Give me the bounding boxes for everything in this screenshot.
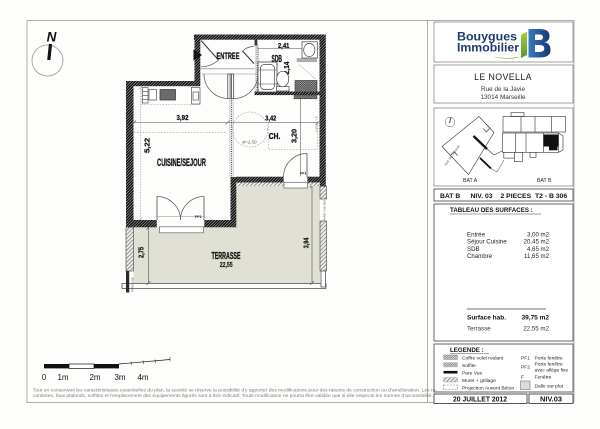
svg-text:LE NOVELLA: LE NOVELLA <box>474 72 532 82</box>
svg-text:39,75 m2: 39,75 m2 <box>522 315 550 322</box>
svg-text:3m: 3m <box>114 373 125 382</box>
svg-text:Immobilier: Immobilier <box>457 43 520 55</box>
svg-text:3,00 m2: 3,00 m2 <box>527 232 550 239</box>
svg-text:PARE VUE: PARE VUE <box>131 277 135 292</box>
svg-text:Projection Auvent Béton: Projection Auvent Béton <box>462 386 514 392</box>
svg-text:3,42: 3,42 <box>265 116 276 123</box>
svg-text:ENTREE: ENTREE <box>217 51 240 62</box>
svg-text:22,55: 22,55 <box>220 262 233 269</box>
svg-text:Chambre: Chambre <box>467 253 493 260</box>
svg-text:LEGENDE :: LEGENDE : <box>450 347 484 354</box>
svg-text:2,41: 2,41 <box>278 43 290 50</box>
svg-text:TABLEAU DES SURFACES :: TABLEAU DES SURFACES : <box>450 207 533 214</box>
svg-text:Entrée: Entrée <box>467 232 486 239</box>
svg-text:Soffite: Soffite <box>462 363 476 369</box>
svg-text:ø=1,50: ø=1,50 <box>242 140 257 145</box>
svg-text:Muret + grillage: Muret + grillage <box>462 378 496 384</box>
svg-text:4,65 m2: 4,65 m2 <box>527 246 550 253</box>
svg-text:Dalle sur plot: Dalle sur plot <box>535 384 564 390</box>
svg-text:1m: 1m <box>57 373 68 382</box>
svg-text:NIV. 03: NIV. 03 <box>471 193 493 200</box>
svg-text:2,75: 2,75 <box>138 247 145 258</box>
svg-text:PARE VUE RIG: PARE VUE RIG <box>323 199 327 221</box>
svg-text:CUISINE/SEJOUR: CUISINE/SEJOUR <box>157 157 206 169</box>
svg-text:PF1: PF1 <box>195 215 202 219</box>
svg-text:PF2: PF2 <box>521 365 530 371</box>
svg-text:Surface hab.: Surface hab. <box>467 315 506 322</box>
svg-text:combées, faux plafonds, soffit: combées, faux plafonds, soffites et l'em… <box>33 393 433 398</box>
svg-text:Séjour Cuisine: Séjour Cuisine <box>467 239 507 246</box>
svg-text:BAT B: BAT B <box>440 193 460 200</box>
svg-text:Porte fenêtre: Porte fenêtre <box>535 356 564 362</box>
svg-text:COFFRE V.R.: COFFRE V.R. <box>314 115 318 132</box>
svg-text:5,22: 5,22 <box>144 138 151 153</box>
svg-text:3,94: 3,94 <box>303 238 310 249</box>
svg-text:N: N <box>47 30 57 45</box>
svg-text:Terrasse: Terrasse <box>467 326 491 333</box>
svg-text:20 JUILLET 2012: 20 JUILLET 2012 <box>453 395 507 404</box>
svg-text:Pare Vue: Pare Vue <box>462 371 482 377</box>
svg-text:3,92: 3,92 <box>177 115 189 122</box>
svg-text:4m: 4m <box>137 373 148 382</box>
svg-text:20,45 m2: 20,45 m2 <box>524 239 550 246</box>
svg-text:CH.: CH. <box>269 131 281 141</box>
svg-text:Coffre volet roulant: Coffre volet roulant <box>462 356 504 362</box>
svg-text:Porte fenêtre: Porte fenêtre <box>535 362 564 368</box>
svg-text:avec allège fixe: avec allège fixe <box>535 368 569 374</box>
svg-text:2m: 2m <box>89 373 100 382</box>
svg-text:22,55 m2: 22,55 m2 <box>523 326 549 333</box>
svg-text:NIV.03: NIV.03 <box>540 395 562 404</box>
svg-text:3,20: 3,20 <box>292 129 299 143</box>
svg-text:T2 - B 306: T2 - B 306 <box>535 193 567 200</box>
svg-text:SDB: SDB <box>467 246 480 253</box>
svg-text:2 PIECES: 2 PIECES <box>501 193 532 200</box>
svg-text:Tout en conservant les caracté: Tout en conservant les caractéristiques … <box>33 388 438 393</box>
svg-text:0: 0 <box>42 373 47 382</box>
svg-text:Rue de la Javie: Rue de la Javie <box>481 86 525 93</box>
svg-text:11,65 m2: 11,65 m2 <box>524 253 550 260</box>
svg-text:PF1: PF1 <box>521 356 530 362</box>
svg-text:13014 Marseille: 13014 Marseille <box>480 94 526 101</box>
svg-text:Fenêtre: Fenêtre <box>535 375 552 381</box>
svg-text:PF1: PF1 <box>300 172 307 176</box>
svg-text:TERRASSE: TERRASSE <box>212 251 241 262</box>
svg-text:BAT A: BAT A <box>463 178 478 184</box>
svg-text:F: F <box>521 375 524 381</box>
svg-text:BAT B: BAT B <box>537 178 552 184</box>
